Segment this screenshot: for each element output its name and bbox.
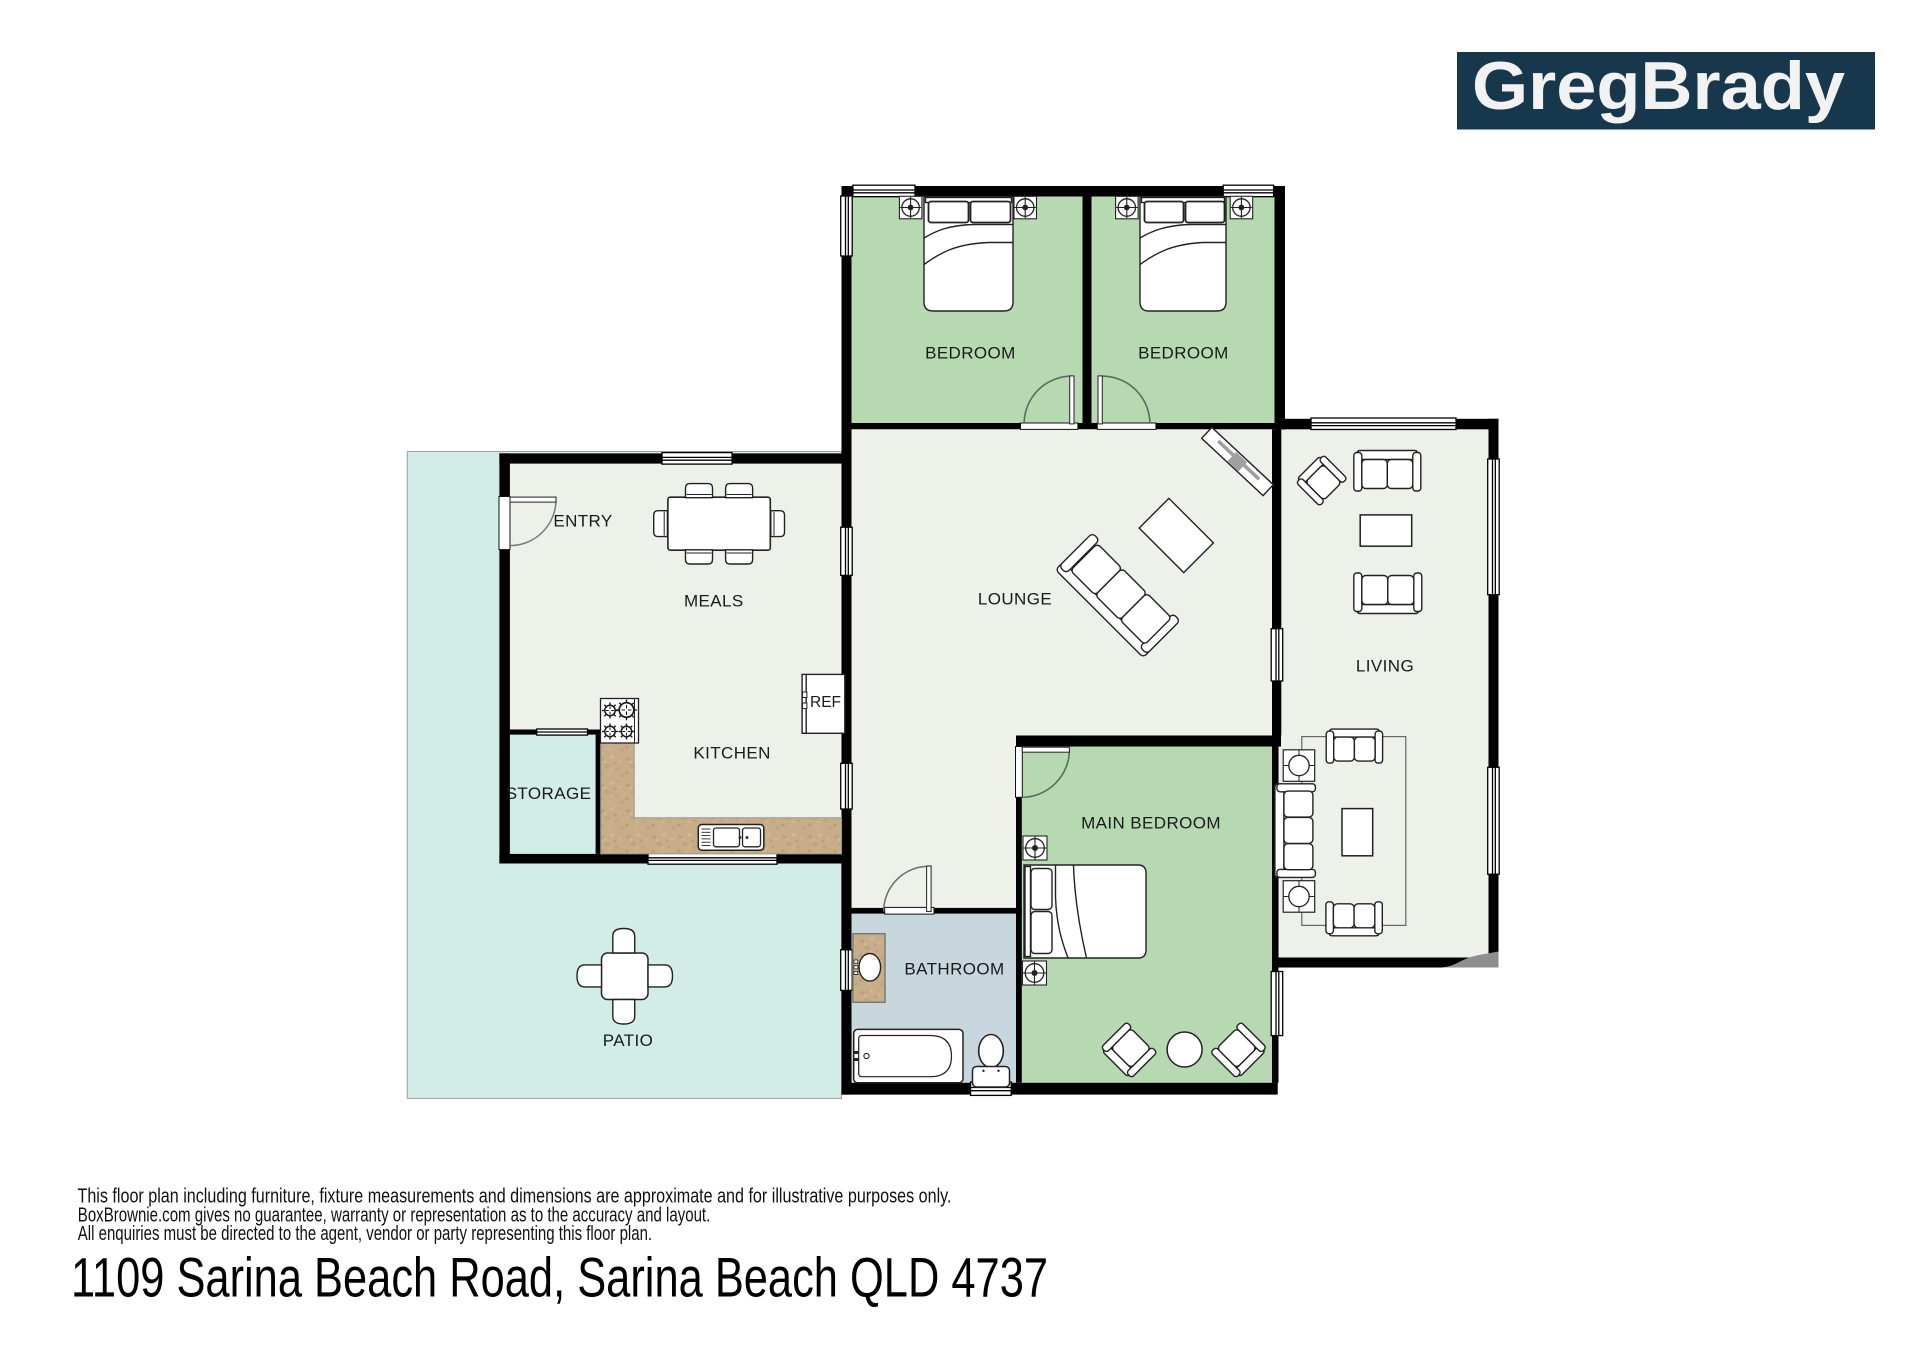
svg-text:ENTRY: ENTRY [553, 512, 612, 531]
svg-text:MEALS: MEALS [684, 592, 744, 611]
svg-text:LOUNGE: LOUNGE [978, 590, 1052, 609]
svg-text:BATHROOM: BATHROOM [904, 960, 1004, 979]
svg-text:KITCHEN: KITCHEN [693, 744, 770, 763]
svg-text:All enquiries must be directed: All enquiries must be directed to the ag… [78, 1222, 652, 1245]
svg-text:LIVING: LIVING [1356, 657, 1414, 676]
svg-text:BEDROOM: BEDROOM [925, 344, 1016, 363]
svg-text:GregBrady: GregBrady [1472, 48, 1845, 124]
svg-text:MAIN BEDROOM: MAIN BEDROOM [1081, 814, 1221, 833]
svg-text:REF: REF [810, 694, 841, 711]
svg-text:STORAGE: STORAGE [506, 784, 592, 803]
svg-text:1109 Sarina Beach Road, Sarina: 1109 Sarina Beach Road, Sarina Beach QLD… [71, 1246, 1048, 1309]
svg-text:BEDROOM: BEDROOM [1138, 344, 1229, 363]
svg-text:PATIO: PATIO [603, 1031, 654, 1050]
